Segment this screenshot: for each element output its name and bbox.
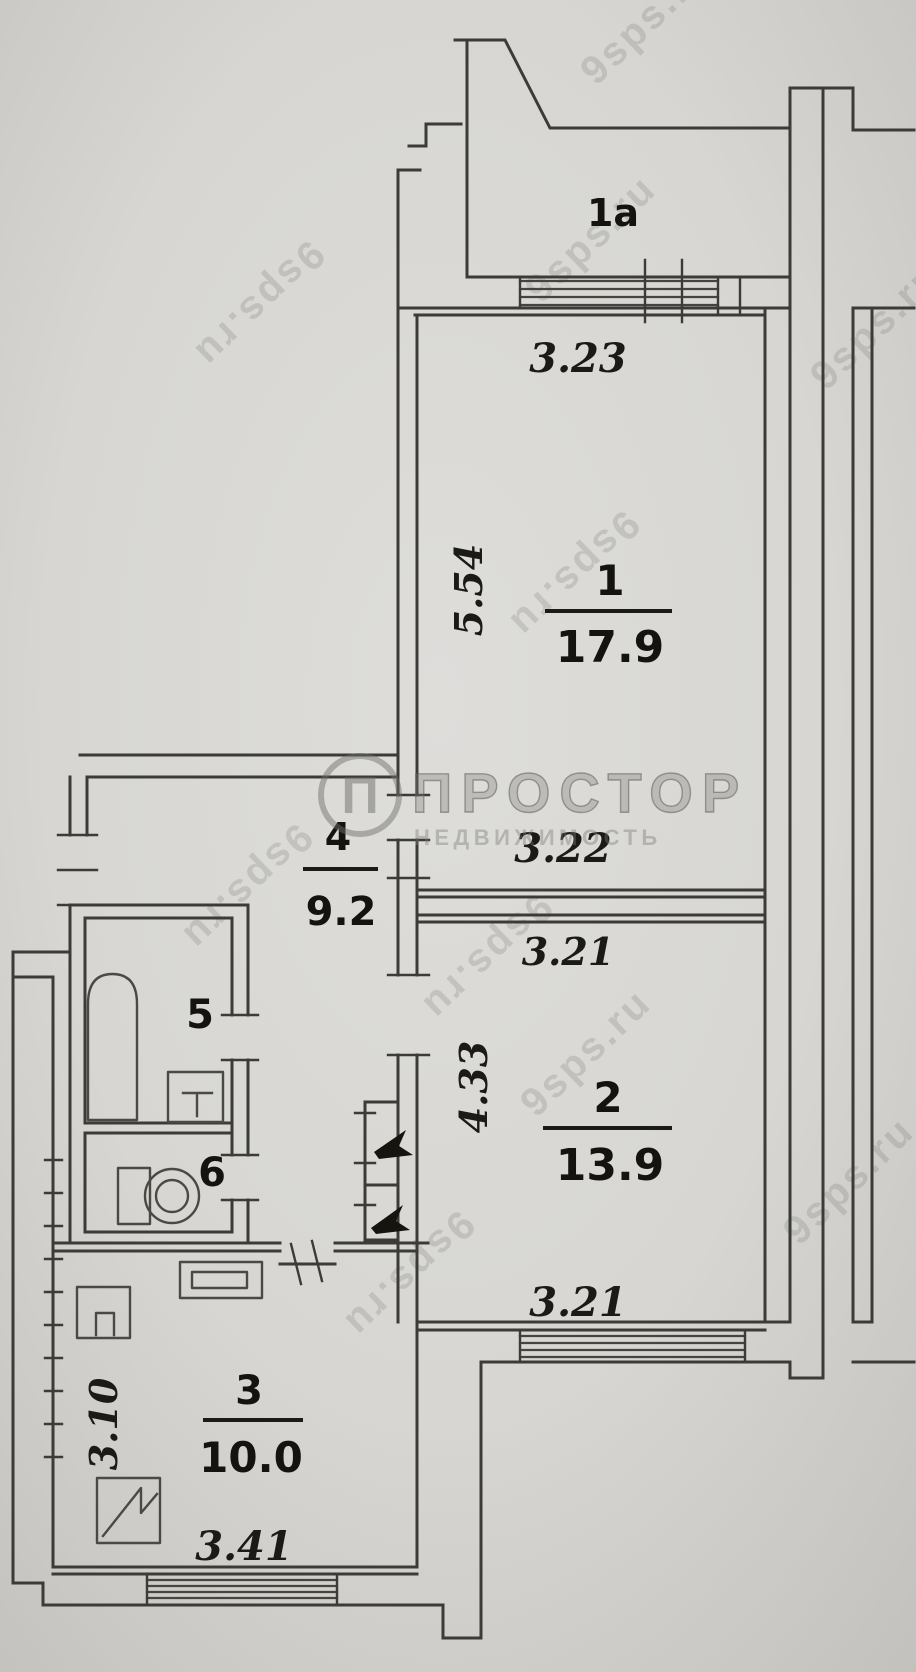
room2-width-bottom: 3.21 (529, 1279, 626, 1326)
balcony-label: 1a (587, 191, 639, 235)
room5-number: 5 (186, 992, 214, 1038)
room2-number: 2 (593, 1073, 622, 1122)
room1-area: 17.9 (556, 622, 665, 673)
room3-number: 3 (235, 1368, 263, 1414)
floor-plan-drawing: 9sps.ru 9sps.ru 9sps.ru 9sps.ru 9sps.ru … (0, 0, 916, 1672)
room1-depth: 5.54 (446, 544, 491, 637)
agency-logo-letter: П (341, 767, 378, 825)
room1-number: 1 (595, 556, 624, 605)
room2-area: 13.9 (556, 1140, 665, 1191)
floor-plan-page: 9sps.ru 9sps.ru 9sps.ru 9sps.ru 9sps.ru … (0, 0, 916, 1672)
room3-depth: 3.10 (81, 1377, 126, 1470)
room6-number: 6 (198, 1150, 226, 1196)
room4-area: 9.2 (306, 889, 377, 935)
agency-brand-text: ПРОСТОР (412, 761, 748, 824)
room3-area: 10.0 (199, 1433, 303, 1482)
agency-subtitle-text: НЕДВИЖИМОСТЬ (414, 825, 662, 850)
room1-width-top: 3.23 (529, 335, 626, 382)
room2-width-top: 3.21 (522, 929, 615, 974)
room2-depth: 4.33 (451, 1041, 496, 1134)
room3-width: 3.41 (195, 1523, 292, 1570)
